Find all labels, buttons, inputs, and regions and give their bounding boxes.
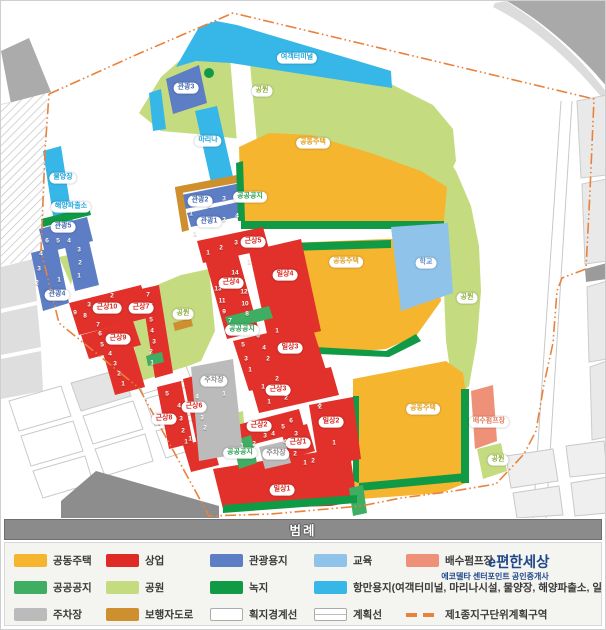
zone-label: 여객터미널 <box>277 53 317 64</box>
zone-label: 관광5 <box>51 222 76 233</box>
zone-label: 공원 <box>457 293 478 304</box>
zone-label: 근상5 <box>241 237 266 248</box>
zone-label: 공공공지 <box>233 192 267 203</box>
legend-swatch <box>14 608 47 621</box>
legend-item: 보행자도로 <box>106 607 193 622</box>
legend-item: 상업 <box>106 553 164 568</box>
lot-number: 1 <box>275 328 279 335</box>
lot-number: 3 <box>222 196 226 203</box>
legend-item: 계획선 <box>314 607 382 622</box>
zone-label: 배수펌프장 <box>469 417 509 428</box>
lot-number: 1 <box>206 250 210 257</box>
lot-number: 9 <box>222 309 226 316</box>
legend-swatch <box>210 608 243 621</box>
legend-label: 배수펌프장 <box>445 553 493 568</box>
lot-number: 7 <box>146 292 150 299</box>
legend-label: 녹지 <box>249 580 268 595</box>
legend-label: 상업 <box>145 553 164 568</box>
lot-number: 3 <box>244 356 248 363</box>
lot-number: 2 <box>110 293 114 300</box>
lot-number: 1 <box>150 360 154 367</box>
zone-label: 근상6 <box>182 402 207 413</box>
legend-item: 배수펌프장 <box>406 553 493 568</box>
zone-label: 공동주택 <box>329 257 363 268</box>
legend-label: 교육 <box>353 553 372 568</box>
lot-number: 10 <box>241 301 248 308</box>
lot-number: 3 <box>294 431 298 438</box>
lot-number: 1 <box>303 460 307 467</box>
legend-item: 제1종지구단위계획구역 <box>406 607 547 622</box>
legend-label: 공공공지 <box>53 580 92 595</box>
zone-label: 공공공지 <box>225 325 259 336</box>
zone-label: 일상2 <box>319 417 344 428</box>
lot-number: 2 <box>275 376 279 383</box>
legend-swatch <box>106 581 139 594</box>
lot-number: 4 <box>177 403 181 410</box>
legend-item: 공원 <box>106 580 164 595</box>
lot-number: 4 <box>67 238 71 245</box>
lot-number: 7 <box>228 318 232 325</box>
lot-number: 6 <box>98 331 102 338</box>
lot-number: 2 <box>35 280 39 287</box>
legend-item: 항만용지(여객터미널, 마리나시설, 물양장, 해양파출소, 일반부두 <box>314 580 602 595</box>
legend-item: 녹지 <box>210 580 268 595</box>
legend-swatch <box>314 554 347 567</box>
lot-number: 4 <box>262 345 266 352</box>
legend-item: 관광용지 <box>210 553 288 568</box>
zone-label: 근상7 <box>129 303 154 314</box>
zone-label: 공원 <box>488 455 509 466</box>
zone-label: 근상3 <box>266 385 291 396</box>
lot-number: 4 <box>39 251 43 258</box>
zone-label: 물양장 <box>49 173 76 184</box>
lot-number: 8 <box>245 311 249 318</box>
legend-swatch <box>106 554 139 567</box>
lot-number: 2 <box>117 371 121 378</box>
lot-number: 2 <box>149 349 153 356</box>
legend-swatch <box>314 581 347 594</box>
zone-label: 관광3 <box>174 83 199 94</box>
lot-number: 3 <box>77 247 81 254</box>
brand-subtitle: 에코델타 센터포인트 공인중개사 <box>415 571 575 582</box>
lot-number: 5 <box>56 238 60 245</box>
lot-number: 6 <box>45 238 49 245</box>
lot-number: 1 <box>121 381 125 388</box>
zone-label: 해양파출소 <box>51 202 91 213</box>
legend-item: 주차장 <box>14 607 82 622</box>
lot-number: 2 <box>252 441 256 448</box>
lot-number: 5 <box>100 342 104 349</box>
lot-number: 2 <box>181 428 185 435</box>
lot-number: 5 <box>165 391 169 398</box>
zone-label: 근상8 <box>152 414 177 425</box>
legend-label: 공동주택 <box>53 553 92 568</box>
legend-label: 제1종지구단위계획구역 <box>445 607 547 622</box>
lot-number: 6 <box>289 418 293 425</box>
legend-label: 항만용지(여객터미널, 마리나시설, 물양장, 해양파출소, 일반부두 <box>353 580 602 595</box>
legend-title: 범례 <box>289 520 316 539</box>
brand-logo: e편한세상 <box>488 551 549 572</box>
zone-label: 일상3 <box>278 343 303 354</box>
legend-label: 계획선 <box>353 607 382 622</box>
lot-number: 1 <box>57 277 61 284</box>
legend-swatch <box>210 581 243 594</box>
zone-label: 공원 <box>173 309 194 320</box>
legend-body: 공동주택상업관광용지교육배수펌프장공공공지공원녹지항만용지(여객터미널, 마리나… <box>4 542 602 626</box>
lot-number: 4 <box>271 431 275 438</box>
legend-header: 범례 <box>4 519 602 540</box>
zone-label: 공동주택 <box>406 404 440 415</box>
lot-number: 4 <box>108 351 112 358</box>
lot-number: 3 <box>234 240 238 247</box>
lot-number: 1 <box>248 367 252 374</box>
lot-number: 1 <box>189 211 193 218</box>
lot-number: 2 <box>293 451 297 458</box>
lot-number: 1 <box>267 399 271 406</box>
lot-number: 2 <box>78 260 82 267</box>
lot-number: 2 <box>284 395 288 402</box>
lot-number: 3 <box>222 217 226 224</box>
lot-number: 7 <box>96 322 100 329</box>
legend-item: 공동주택 <box>14 553 92 568</box>
lot-number: 1 <box>193 231 197 238</box>
lot-number: 1 <box>222 391 226 398</box>
zoning-map: 여객터미널공원관광3마리나물양장해양파출소관광5관광4관광2공공공지관광1근상5… <box>1 1 606 518</box>
legend-swatch <box>106 608 139 621</box>
legend-label: 관광용지 <box>249 553 288 568</box>
lot-number: 2 <box>203 425 207 432</box>
lot-number: 2 <box>266 356 270 363</box>
zone-label: 주차장 <box>262 449 289 460</box>
zone-label: 관광4 <box>45 290 70 301</box>
lot-number: 3 <box>113 361 117 368</box>
zone-label: 주차장 <box>200 376 227 387</box>
lot-number: 3 <box>200 415 204 422</box>
lot-number: 3 <box>179 416 183 423</box>
legend-label: 공원 <box>145 580 164 595</box>
zone-label: 관광1 <box>197 217 222 228</box>
lot-number: 4 <box>150 328 154 335</box>
legend-label: 획지경계선 <box>249 607 297 622</box>
zone-label: 근상10 <box>93 303 122 314</box>
lot-number: 2 <box>219 245 223 252</box>
zone-label: 일상4 <box>273 270 298 281</box>
legend-swatch <box>14 554 47 567</box>
zone-label: 근상2 <box>247 421 272 432</box>
legend-item: 획지경계선 <box>210 607 297 622</box>
lot-number: 3 <box>87 302 91 309</box>
lot-number: 12 <box>240 289 247 296</box>
lot-number: 1 <box>188 436 192 443</box>
legend-item: 교육 <box>314 553 372 568</box>
legend-swatch <box>210 554 243 567</box>
lot-number: 5 <box>241 342 245 349</box>
zone-label: 일상1 <box>270 485 295 496</box>
lot-number: 5 <box>149 317 153 324</box>
lot-number: 4 <box>195 394 199 401</box>
legend-label: 보행자도로 <box>145 607 193 622</box>
district-plan-map-page: 여객터미널공원관광3마리나물양장해양파출소관광5관광4관광2공공공지관광1근상5… <box>0 0 606 630</box>
zone-label: 근상1 <box>286 438 311 449</box>
zone-label: 근상4 <box>219 278 244 289</box>
legend-item: 공공공지 <box>14 580 92 595</box>
legend-swatch <box>406 613 439 617</box>
lot-number: 3 <box>152 339 156 346</box>
zone-label: 공원 <box>252 86 273 97</box>
lot-number: 1 <box>261 384 265 391</box>
lot-number: 8 <box>83 313 87 320</box>
lot-number: 1 <box>332 440 336 447</box>
lot-number: 9 <box>73 310 77 317</box>
lot-number: 1 <box>77 273 81 280</box>
legend-swatch <box>406 554 439 567</box>
lot-number: 3 <box>37 266 41 273</box>
legend-swatch <box>14 581 47 594</box>
lot-number: 2 <box>318 404 322 411</box>
legend-label: 주차장 <box>53 607 82 622</box>
zone-label: 관광2 <box>188 196 213 207</box>
lot-number: 14 <box>231 270 238 277</box>
lot-number: 11 <box>219 298 226 305</box>
zone-label: 공공공지 <box>223 448 257 459</box>
legend-swatch <box>314 608 347 621</box>
lot-number: 5 <box>281 424 285 431</box>
lot-number: 4 <box>235 213 239 220</box>
zone-label: 공동주택 <box>296 138 330 149</box>
green-dot <box>204 68 214 78</box>
lot-number: 1 <box>247 259 251 266</box>
zone-label: 근상9 <box>106 334 131 345</box>
lot-number: 3 <box>263 433 267 440</box>
zone-label: 마리나 <box>194 136 221 147</box>
zone-label: 학교 <box>416 258 437 269</box>
lot-number: 2 <box>311 458 315 465</box>
